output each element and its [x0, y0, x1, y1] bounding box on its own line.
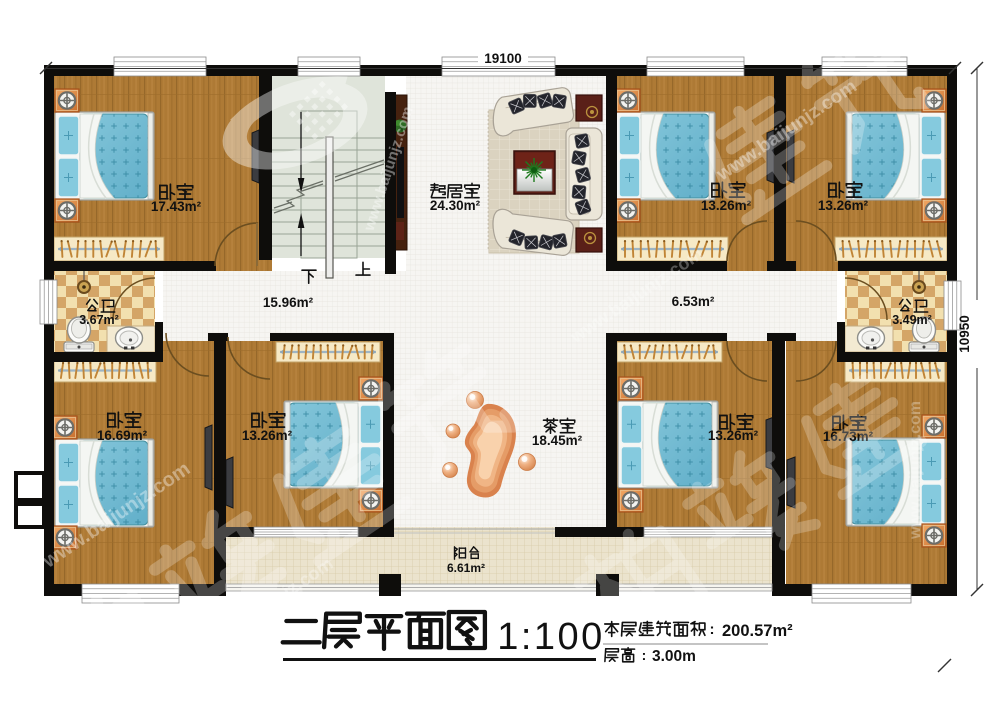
svg-text:200.57m²: 200.57m²	[722, 622, 793, 640]
svg-text:3.00m: 3.00m	[652, 648, 696, 665]
svg-text:13.26m²: 13.26m²	[242, 428, 293, 443]
svg-text::: :	[642, 647, 647, 663]
svg-text:13.26m²: 13.26m²	[818, 198, 869, 213]
svg-text:3.49m²: 3.49m²	[892, 313, 932, 327]
svg-text:6.53m²: 6.53m²	[672, 294, 715, 309]
svg-text:18.45m²: 18.45m²	[532, 433, 583, 448]
svg-text:24.30m²: 24.30m²	[430, 198, 481, 213]
svg-text:17.43m²: 17.43m²	[151, 199, 202, 214]
svg-text:6.61m²: 6.61m²	[447, 561, 485, 575]
svg-text:1:100: 1:100	[497, 616, 605, 658]
svg-text:15.96m²: 15.96m²	[263, 295, 314, 310]
svg-text::: :	[710, 621, 715, 638]
svg-text:10950: 10950	[957, 315, 972, 353]
svg-text:www.baijunjz.com: www.baijunjz.com	[907, 401, 924, 540]
svg-text:13.26m²: 13.26m²	[708, 428, 759, 443]
svg-text:16.69m²: 16.69m²	[97, 428, 148, 443]
svg-text:19100: 19100	[484, 51, 522, 66]
svg-text:3.67m²: 3.67m²	[79, 313, 119, 327]
